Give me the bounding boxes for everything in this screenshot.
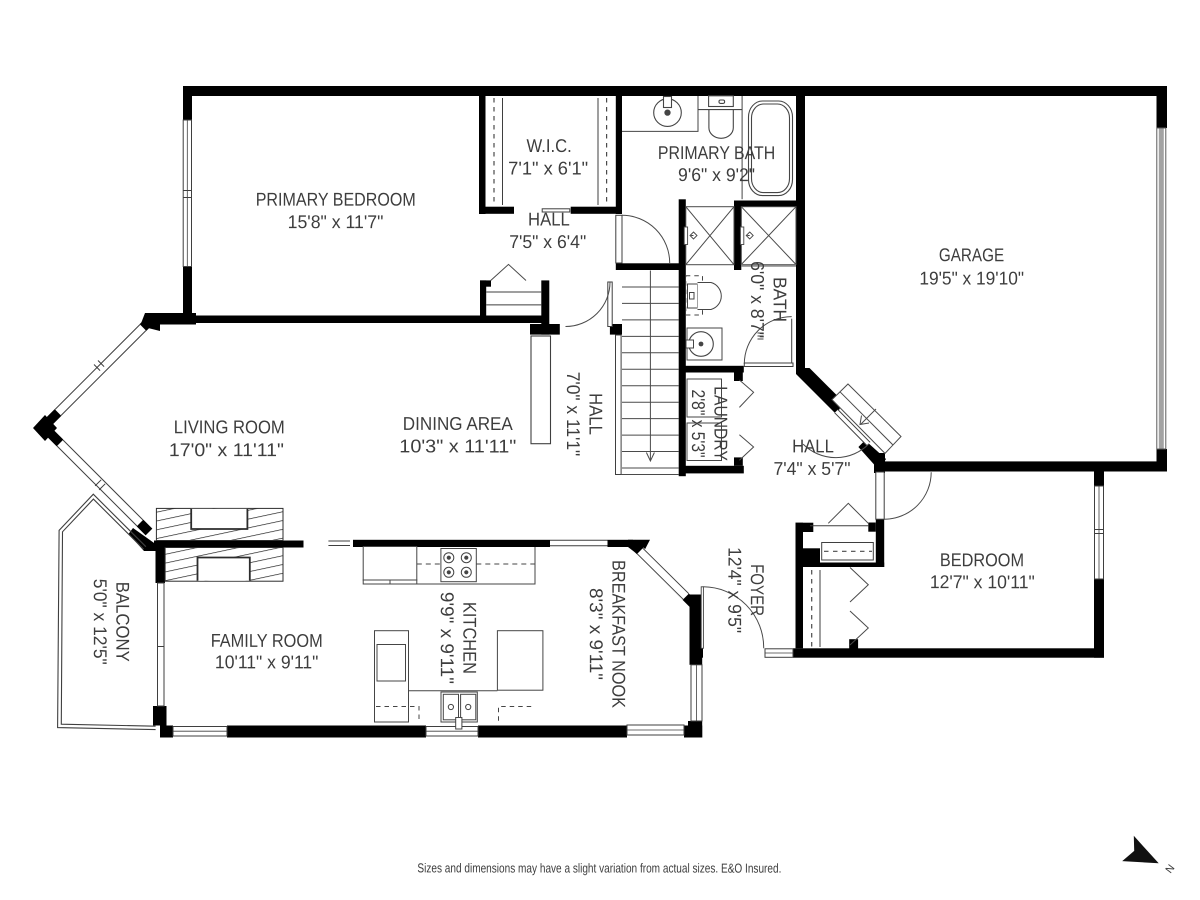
svg-text:7'0" x 11'1": 7'0" x 11'1" <box>563 372 584 457</box>
svg-text:7'1" x 6'1": 7'1" x 6'1" <box>508 157 588 178</box>
svg-text:HALL: HALL <box>586 393 607 435</box>
svg-text:LAUNDRY: LAUNDRY <box>710 386 731 461</box>
svg-text:HALL: HALL <box>792 435 834 456</box>
svg-text:5'0" x 12'5": 5'0" x 12'5" <box>90 579 111 665</box>
svg-text:19'5" x 19'10": 19'5" x 19'10" <box>919 267 1024 288</box>
svg-text:9'6" x 9'2": 9'6" x 9'2" <box>678 164 755 185</box>
svg-text:12'4" x 9'5": 12'4" x 9'5" <box>724 547 745 633</box>
svg-text:DINING AREA: DINING AREA <box>403 413 514 434</box>
svg-text:BREAKFAST NOOK: BREAKFAST NOOK <box>608 560 629 709</box>
svg-text:9'9" x 9'11": 9'9" x 9'11" <box>437 592 458 684</box>
svg-text:FOYER: FOYER <box>747 564 768 616</box>
svg-text:LIVING ROOM: LIVING ROOM <box>174 416 285 437</box>
svg-text:FAMILY ROOM: FAMILY ROOM <box>211 630 323 651</box>
svg-text:2'8" x 5'3": 2'8" x 5'3" <box>688 390 709 458</box>
svg-text:10'3" x 11'11": 10'3" x 11'11" <box>399 435 516 456</box>
svg-text:15'8" x 11'7": 15'8" x 11'7" <box>288 211 384 232</box>
svg-text:BEDROOM: BEDROOM <box>940 549 1024 570</box>
svg-text:7'4" x 5'7": 7'4" x 5'7" <box>773 458 850 479</box>
svg-text:HALL: HALL <box>528 208 570 229</box>
svg-text:PRIMARY BEDROOM: PRIMARY BEDROOM <box>256 189 416 210</box>
svg-text:BALCONY: BALCONY <box>112 582 133 662</box>
svg-text:W.I.C.: W.I.C. <box>527 135 572 156</box>
svg-text:17'0" x 11'11": 17'0" x 11'11" <box>169 439 284 460</box>
svg-text:12'7" x 10'11": 12'7" x 10'11" <box>930 571 1035 592</box>
svg-text:GARAGE: GARAGE <box>939 244 1004 265</box>
svg-text:BATH: BATH <box>770 277 791 322</box>
svg-text:6'0" x 8'7": 6'0" x 8'7" <box>747 261 768 338</box>
svg-text:10'11" x 9'11": 10'11" x 9'11" <box>215 651 319 672</box>
svg-text:7'5" x 6'4": 7'5" x 6'4" <box>509 231 586 252</box>
svg-text:8'3" x 9'11": 8'3" x 9'11" <box>586 588 607 680</box>
svg-text:PRIMARY BATH: PRIMARY BATH <box>658 142 775 163</box>
svg-text:KITCHEN: KITCHEN <box>459 602 480 674</box>
svg-text:Sizes and dimensions may have: Sizes and dimensions may have a slight v… <box>417 860 781 875</box>
